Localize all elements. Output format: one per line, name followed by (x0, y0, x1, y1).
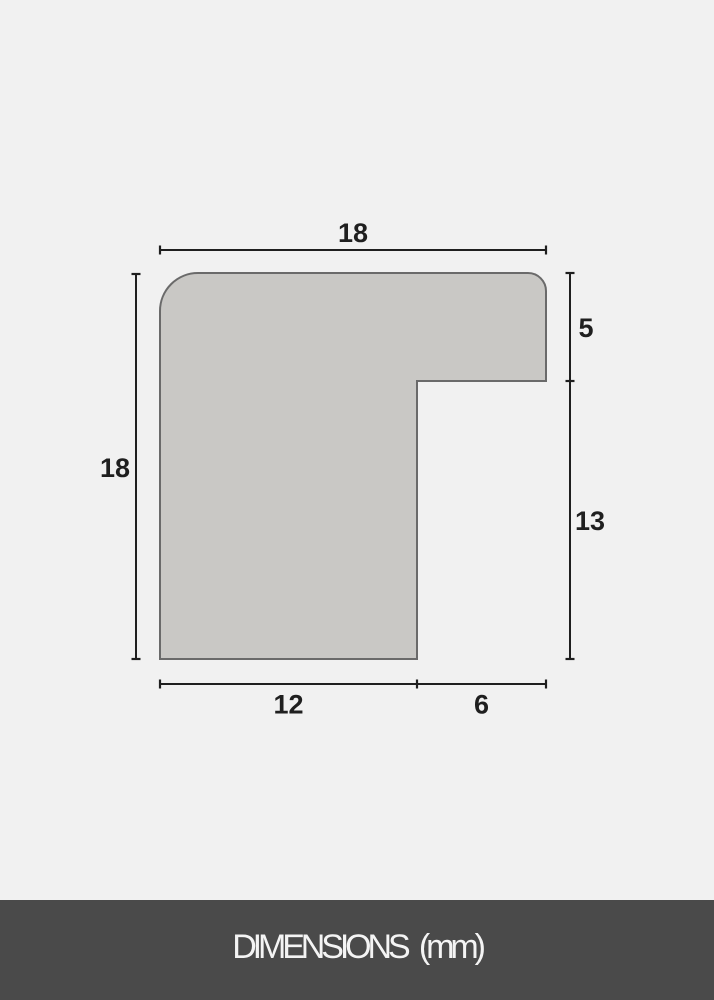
svg-text:18: 18 (100, 453, 130, 483)
svg-text:12: 12 (273, 690, 303, 720)
svg-text:13: 13 (575, 506, 605, 536)
svg-text:18: 18 (338, 218, 368, 248)
svg-text:5: 5 (578, 313, 593, 343)
svg-text:6: 6 (474, 690, 489, 720)
